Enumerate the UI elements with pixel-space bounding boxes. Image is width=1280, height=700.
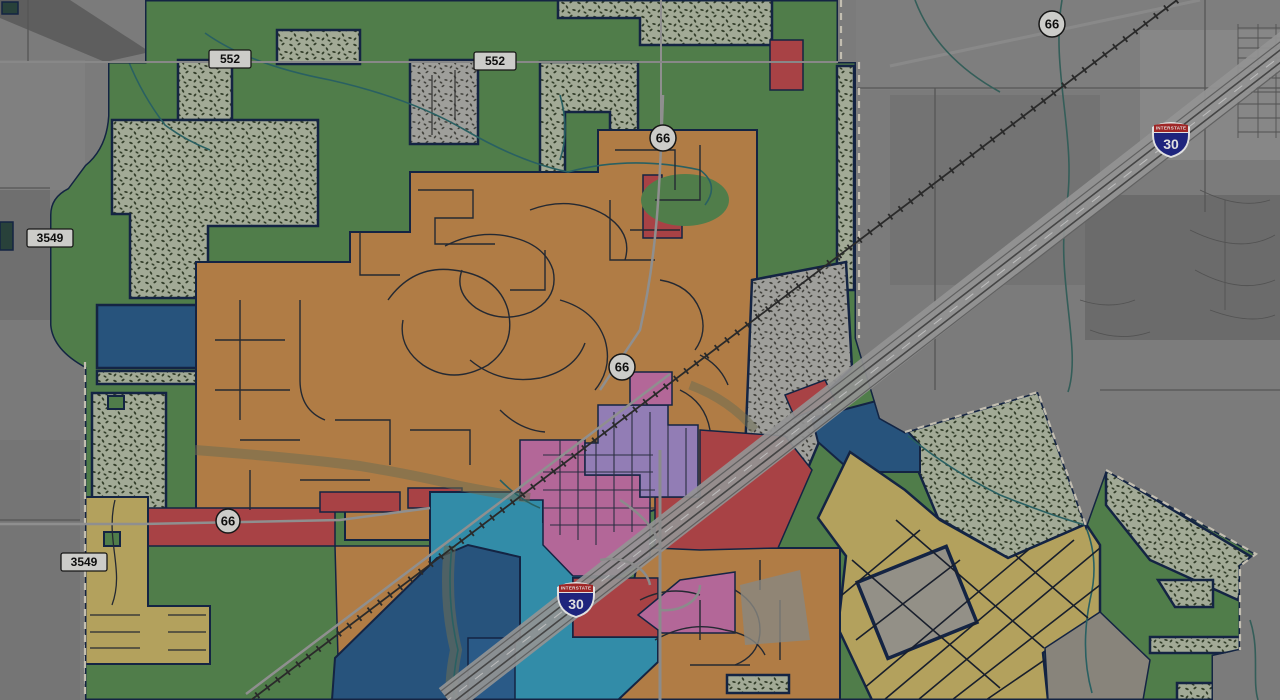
zoning-map-svg: 552 552 3549 3549 66 66 66 66 INTERSTATE… xyxy=(0,0,1280,700)
dim-overlay xyxy=(0,0,1280,700)
map-canvas[interactable]: 552 552 3549 3549 66 66 66 66 INTERSTATE… xyxy=(0,0,1280,700)
